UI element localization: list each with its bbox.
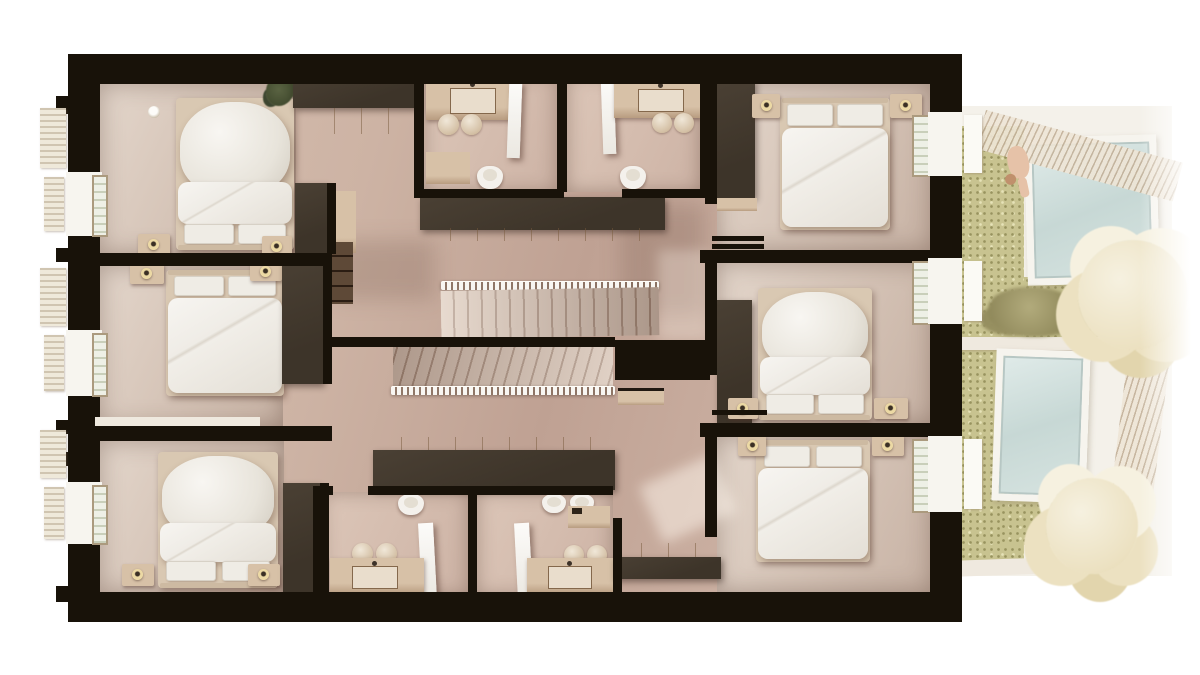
nightstand (752, 94, 780, 118)
wall-fin (56, 586, 68, 602)
toilet (542, 494, 566, 513)
tall-wardrobe-dressing (295, 183, 327, 254)
bath-bench (426, 152, 470, 184)
pillow (174, 276, 224, 296)
shelf-bar (712, 244, 764, 249)
person-legs (1017, 177, 1030, 198)
shelf-top-right-room (717, 198, 757, 211)
bath-bottom-north-wall-a (313, 486, 333, 495)
bath-divider-wall-top (557, 75, 567, 192)
table-lamp (132, 569, 143, 580)
window-box (964, 261, 982, 321)
lower-stair-treads (393, 347, 613, 387)
window-frame (92, 333, 108, 397)
shower-screen (507, 82, 523, 158)
window-box (964, 439, 982, 509)
bed-mid-left (166, 270, 284, 396)
dresser-top-left-room (308, 108, 420, 134)
bath-top-left-wall (414, 75, 424, 192)
duvet (760, 357, 870, 395)
bath-bottom-right-wall (613, 518, 622, 596)
table-lamp (900, 100, 911, 111)
window-frame (92, 175, 108, 237)
table-lamp (271, 241, 282, 252)
partition-left-2 (68, 426, 332, 441)
vanity-bath-top-right (614, 80, 700, 118)
duvet (758, 468, 868, 559)
bath-top-right-wall (700, 75, 710, 192)
towel (652, 113, 672, 133)
dressing-stub-wall (327, 183, 336, 254)
faucet (372, 561, 377, 566)
table-lamp (882, 440, 893, 451)
table-lamp (260, 266, 271, 277)
pillow (787, 104, 833, 126)
pillow (766, 394, 814, 414)
vanity-bath-bottom-right (527, 558, 613, 594)
table-lamp (747, 440, 758, 451)
nightstand (122, 564, 154, 586)
bed-top-right (780, 98, 890, 230)
built-in-wardrobe-bottom (613, 557, 721, 579)
lower-stair-railing (391, 386, 615, 395)
bath-bottom-north-wall-b (368, 486, 613, 495)
lower-stair-flight (393, 347, 613, 387)
towel (461, 114, 482, 135)
outer-wall-bottom (68, 592, 962, 622)
window-frame (92, 485, 108, 545)
console-shelf (618, 388, 664, 405)
bath-top-south-wall-b (622, 189, 710, 198)
table-lamp (761, 100, 772, 111)
partition-right-2 (700, 423, 962, 437)
sink-basin (352, 566, 398, 589)
window-opening (928, 436, 962, 512)
built-in-wardrobe-top-doors (424, 228, 662, 241)
duvet (178, 182, 292, 224)
pillow (818, 394, 864, 414)
built-in-wardrobe-top (420, 197, 665, 230)
shower-drain (572, 508, 582, 514)
duvet (168, 298, 282, 393)
window-opening (928, 258, 962, 324)
nightstand (738, 436, 766, 456)
window-opening (928, 112, 962, 176)
window-bottom-left (44, 482, 108, 544)
bed-mid-right (758, 288, 872, 420)
duvet (782, 128, 888, 227)
courtyard-fade (1140, 100, 1200, 580)
toilet (620, 166, 646, 189)
wardrobe-mid-left-room (282, 258, 323, 384)
table-lamp (141, 268, 152, 279)
toilet (398, 494, 424, 515)
small-tree (1046, 478, 1138, 574)
table-lamp (148, 239, 159, 250)
shower-tray (568, 506, 610, 528)
table-lamp (258, 569, 269, 580)
nightstand (874, 398, 908, 419)
headboard (782, 98, 888, 103)
window-shutter (44, 335, 64, 391)
towel (438, 114, 459, 135)
window-mid-left (44, 330, 108, 396)
facade-shutter (40, 268, 66, 326)
facade-shutter (40, 108, 66, 168)
mid-left-stub-wall (323, 258, 332, 384)
bath-bottom-left-wall (313, 492, 322, 596)
sunlight-patch-corridor (658, 250, 708, 340)
bed-bottom-right (756, 440, 870, 562)
shelf-bar (712, 236, 764, 241)
bedroom-right-entry-wall-mid (705, 263, 717, 375)
headboard (760, 415, 870, 420)
pillow (816, 446, 862, 467)
partition-left-1 (68, 253, 332, 266)
ceiling-lamp (148, 106, 160, 118)
nightstand (728, 398, 758, 419)
headboard (758, 440, 868, 445)
nightstand (248, 564, 280, 586)
floor-plan-render (0, 0, 1200, 675)
window-top-left (44, 172, 108, 236)
built-in-wardrobe-mid-doors (375, 437, 613, 451)
pillow (184, 224, 234, 244)
window-mid-right (912, 258, 984, 324)
vanity-bath-bottom-left (330, 558, 424, 594)
wall-fin (56, 248, 68, 262)
window-bottom-right (912, 436, 984, 512)
wardrobe-top-right-room (717, 80, 755, 198)
duvet (160, 523, 276, 562)
shelf-bar (712, 410, 767, 415)
window-shutter (44, 177, 64, 231)
bedroom-right-entry-wall-bottom (705, 437, 717, 537)
faucet (567, 561, 572, 566)
stair-mid-wall (330, 337, 615, 347)
facade-shutter (40, 430, 66, 478)
window-box (964, 115, 982, 173)
window-top-right (912, 112, 984, 176)
pillow (764, 446, 810, 467)
bath-top-south-wall-a (414, 189, 564, 198)
headboard-ledge (95, 417, 260, 426)
sink-basin (638, 89, 684, 112)
window-shutter (44, 487, 64, 539)
pillow (166, 561, 216, 581)
bath-divider-wall-bottom (468, 492, 477, 596)
bed-top-left (176, 98, 294, 250)
outer-wall-top (68, 54, 962, 84)
towel (674, 113, 694, 133)
nightstand (872, 436, 904, 456)
sink-basin (548, 566, 592, 589)
toilet (477, 166, 503, 189)
built-in-wardrobe-mid (373, 450, 615, 490)
upper-stair-flight (441, 287, 660, 339)
sink-basin (450, 88, 496, 114)
table-lamp (885, 403, 896, 414)
stair-side-wall (615, 340, 710, 380)
courtyard-shrub (988, 287, 1080, 337)
nightstand (130, 264, 164, 284)
pillow (837, 104, 883, 126)
